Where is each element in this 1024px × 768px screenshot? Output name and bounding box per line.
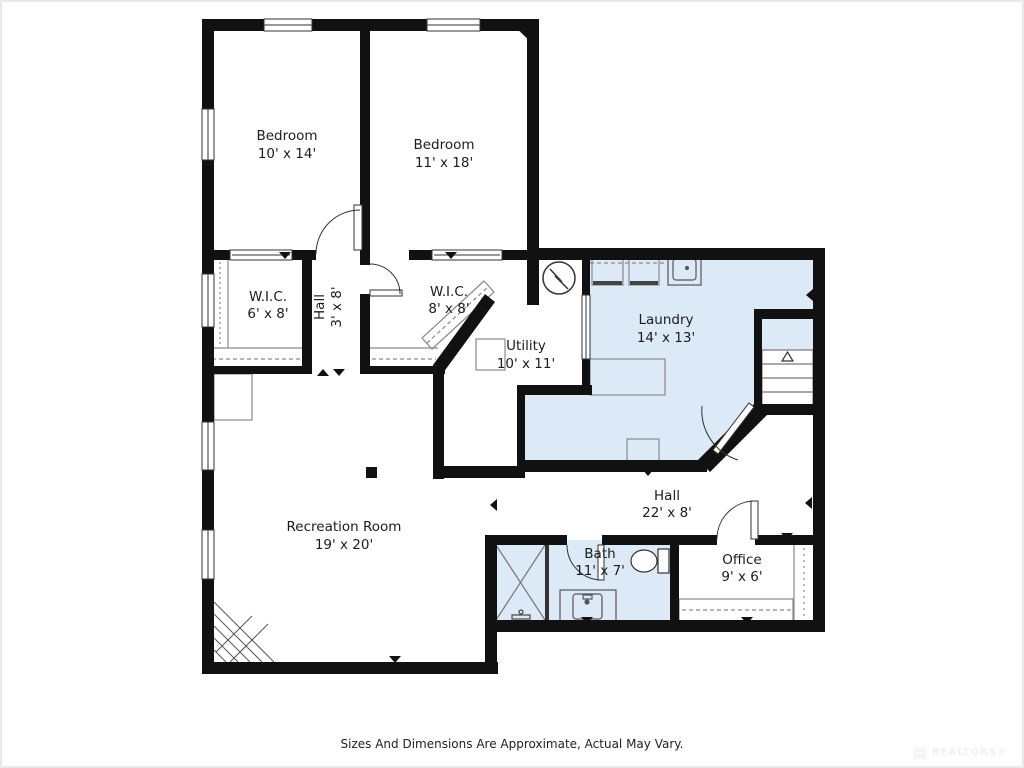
office-door (717, 501, 758, 539)
label-bedroom1-dims: 10' x 14' (258, 146, 316, 162)
label-rec-name: Recreation Room (287, 519, 402, 535)
window-left-2 (202, 274, 214, 327)
label-wic1-dims: 6' x 8' (247, 306, 288, 322)
hall-wic-door (370, 264, 402, 296)
window-left-1 (202, 109, 214, 160)
label-office-dims: 9' x 6' (721, 569, 762, 585)
label-hall2-name: Hall (654, 488, 680, 504)
label-laundry-name: Laundry (638, 312, 693, 328)
window-left-3 (202, 422, 214, 470)
label-bedroom2-name: Bedroom (413, 137, 474, 153)
label-bath-dims: 11' x 7' (575, 563, 625, 579)
label-hall1-dims: 3' x 8' (329, 286, 345, 327)
label-wic1-name: W.I.C. (249, 289, 287, 305)
label-rec-dims: 19' x 20' (315, 537, 373, 553)
label-wic2-name: W.I.C. (430, 284, 468, 300)
label-bath-name: Bath (584, 546, 615, 562)
label-bedroom2-dims: 11' x 18' (415, 155, 473, 171)
watermark-text: REALTORS® (932, 747, 1008, 758)
office-desk (679, 599, 793, 621)
window-top-1 (264, 19, 312, 31)
floor-plan-page: Bedroom 10' x 14' Bedroom 11' x 18' W.I.… (0, 0, 1024, 768)
label-wic2-dims: 8' x 8' (428, 301, 469, 317)
watermark: ▦ REALTORS® (913, 744, 1008, 760)
label-bedroom1-name: Bedroom (256, 128, 317, 144)
watermark-logo-icon: ▦ (913, 744, 928, 760)
corner-stairs-hatch (214, 602, 274, 662)
stairs (762, 350, 813, 405)
office-closet (794, 545, 804, 620)
floor-plan: Bedroom 10' x 14' Bedroom 11' x 18' W.I.… (2, 2, 1024, 768)
toilet-icon (631, 549, 669, 573)
window-top-2 (427, 19, 480, 31)
disclaimer-text: Sizes And Dimensions Are Approximate, Ac… (2, 737, 1022, 751)
label-hall1-name: Hall (312, 294, 328, 320)
post (366, 467, 377, 478)
shower-divider-wall (545, 545, 549, 620)
window-left-4 (202, 530, 214, 579)
bedroom1-door (316, 205, 362, 254)
label-laundry-dims: 14' x 13' (637, 330, 695, 346)
rec-closet (214, 374, 252, 420)
label-utility-name: Utility (506, 338, 546, 354)
label-office-name: Office (722, 552, 761, 568)
bypass-door-2 (432, 250, 502, 260)
label-utility-dims: 10' x 11' (497, 356, 555, 372)
utility-laundry-opening (582, 295, 590, 359)
water-heater-icon (543, 262, 575, 294)
label-hall2-dims: 22' x 8' (642, 505, 692, 521)
